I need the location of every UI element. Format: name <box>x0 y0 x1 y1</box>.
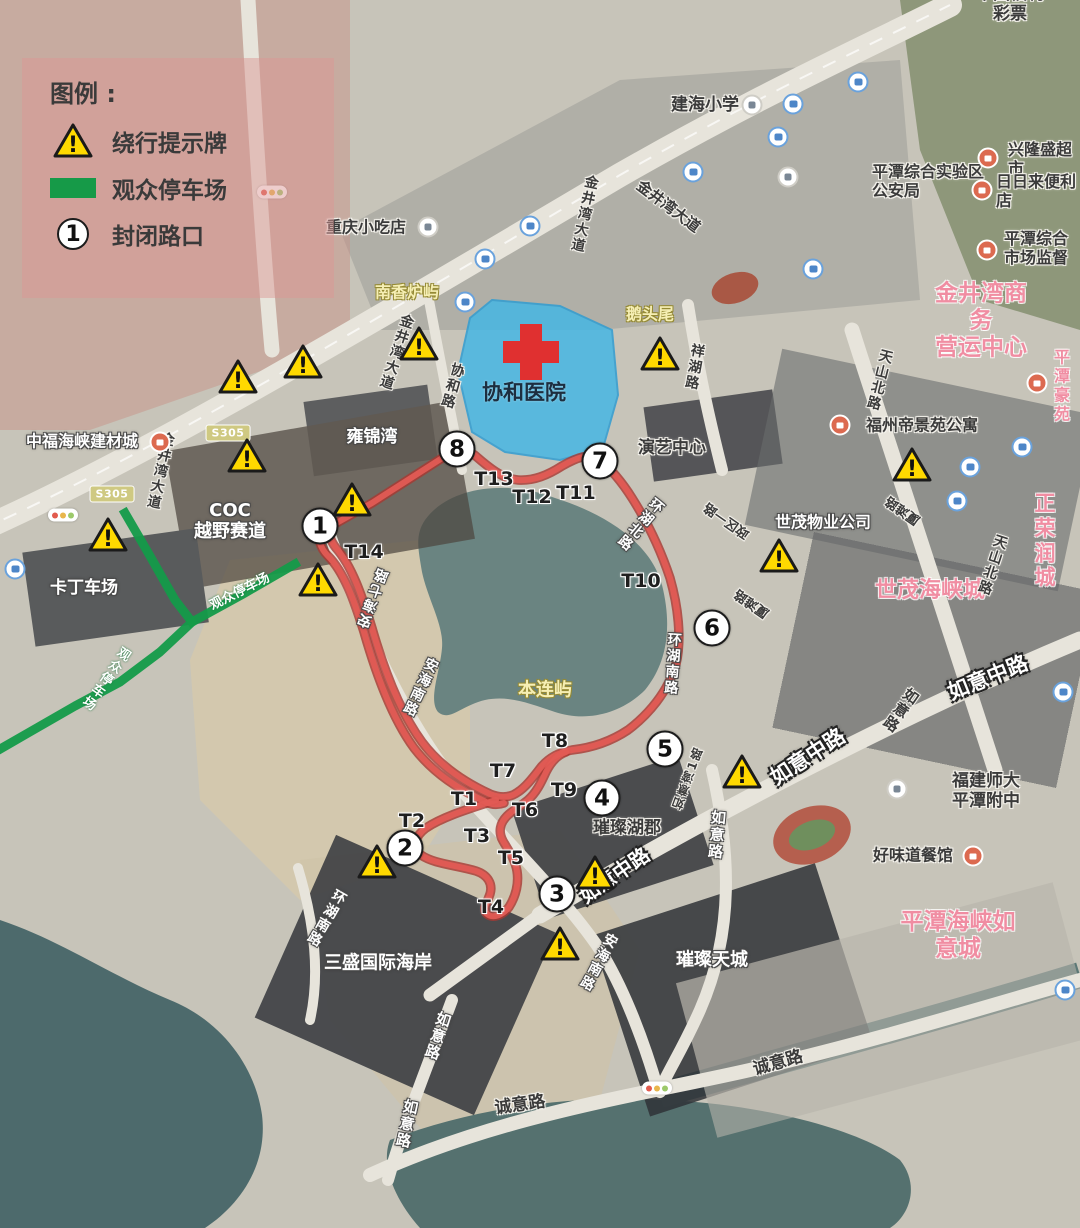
legend-item-label: 观众停车场 <box>112 171 227 205</box>
traffic-light-icon <box>642 1082 672 1095</box>
map-label: 中福海峡建材城 <box>26 433 138 452</box>
shop-icon <box>1027 373 1048 394</box>
bus-stop-icon <box>683 162 704 183</box>
map-label: 如意路 <box>706 809 725 861</box>
parking-route-swatch <box>50 178 96 198</box>
turn-marker: T10 <box>621 570 660 592</box>
bus-stop-icon <box>803 259 824 280</box>
detour-warning-icon: ! <box>357 844 397 880</box>
turn-marker: T12 <box>512 486 551 508</box>
bus-stop-icon <box>947 491 968 512</box>
svg-text:!: ! <box>233 369 243 394</box>
detour-warning-icon: ! <box>399 326 439 362</box>
detour-warning-icon: ! <box>283 344 323 380</box>
svg-text:!: ! <box>313 572 323 597</box>
civic-poi-icon <box>887 779 908 800</box>
map-label: 如意路 <box>393 1097 418 1150</box>
traffic-light-icon <box>48 509 78 522</box>
map-label: 世茂物业公司 <box>775 514 871 533</box>
closed-intersection-marker: 7 <box>582 443 619 480</box>
map-label: 如意路 <box>422 1009 452 1062</box>
map-label: 鹅头尾 <box>626 306 674 325</box>
closed-intersection-marker: 3 <box>539 876 576 913</box>
civic-poi-icon <box>778 167 799 188</box>
map-label: COC 越野赛道 <box>194 500 266 542</box>
map-label: 诚意路 <box>493 1092 546 1119</box>
bus-stop-icon <box>475 249 496 270</box>
map-label: 环湖北路 <box>614 495 666 553</box>
detour-warning-icon: ! <box>218 359 258 395</box>
map-label: 中国福利彩票 <box>975 0 1045 24</box>
closed-intersection-badge: 1 <box>50 218 96 250</box>
map-label: 世茂海峡城 <box>875 578 985 604</box>
map-label: 天山北路 <box>975 532 1008 597</box>
map-label: 如意中路 <box>766 724 850 791</box>
map-label: 厦滩路 <box>732 586 773 621</box>
map-label: 福建师大 平潭附中 <box>952 771 1020 811</box>
map-label: 协和路 <box>439 361 466 411</box>
closed-intersection-marker: 4 <box>584 780 621 817</box>
map-label: 金井湾商务 营运中心 <box>932 280 1031 361</box>
map-label: 诚意路 <box>751 1046 806 1079</box>
turn-marker: T13 <box>474 468 513 490</box>
detour-warning-icon: ! <box>892 447 932 483</box>
bus-stop-icon <box>455 292 476 313</box>
turn-marker: T5 <box>498 847 524 869</box>
map-label: 演艺中心 <box>638 438 706 458</box>
detour-warning-icon: ! <box>298 562 338 598</box>
detour-warning-icon: ! <box>640 336 680 372</box>
turn-marker: T1 <box>451 788 477 810</box>
map-canvas[interactable]: 建海小学平潭综合实验区 公安局兴隆盛超市日日来便利店平潭综合 市场监督中国福利彩… <box>0 0 1080 1228</box>
bus-stop-icon <box>848 72 869 93</box>
svg-text:!: ! <box>414 336 424 361</box>
bus-stop-icon <box>5 559 26 580</box>
svg-text:!: ! <box>590 865 600 890</box>
svg-text:!: ! <box>774 548 784 573</box>
map-label: 厦滩路 <box>883 493 924 528</box>
turn-marker: T8 <box>542 730 568 752</box>
map-label: 环湖南路 <box>304 887 348 949</box>
map-label: 好味道餐馆 <box>873 847 953 866</box>
detour-warning-icon: ! <box>227 438 267 474</box>
turn-marker: T9 <box>551 779 577 801</box>
civic-poi-icon <box>742 95 763 116</box>
shop-icon <box>830 415 851 436</box>
bus-stop-icon <box>960 457 981 478</box>
bus-stop-icon <box>783 94 804 115</box>
turn-marker: T11 <box>556 482 595 504</box>
map-label: 平潭 豪苑 <box>1054 348 1080 424</box>
map-label: 平潭海峡如意城 <box>897 909 1019 963</box>
map-label: 协和医院 <box>482 381 566 406</box>
legend-item-closed: 1 封闭路口 <box>50 217 334 251</box>
legend-item-parking: 观众停车场 <box>50 171 334 205</box>
map-label: 金井湾大道 <box>569 173 599 254</box>
map-label: 重庆小吃店 <box>326 219 406 238</box>
map-label: 安海南路 <box>400 655 440 719</box>
legend-item-label: 绕行提示牌 <box>112 124 227 158</box>
svg-text:!: ! <box>347 492 357 517</box>
detour-warning-icon: ! <box>759 538 799 574</box>
map-label: 天山北路 <box>864 347 893 412</box>
map-label: 三盛国际海岸 <box>324 952 432 973</box>
map-label: 安海南路 <box>577 930 619 993</box>
map-label: 安海七路 <box>356 566 391 631</box>
shop-icon <box>978 148 999 169</box>
turn-marker: T6 <box>512 799 538 821</box>
road-badge-s305: S305 <box>90 486 135 503</box>
map-label: 日日来便利店 <box>996 173 1080 211</box>
map-label: 祥湖路 <box>683 342 705 392</box>
bus-stop-icon <box>1053 682 1074 703</box>
svg-text:!: ! <box>555 936 565 961</box>
map-label: 正荣润城 <box>1028 491 1063 590</box>
map-label: 如意路 <box>879 685 921 735</box>
map-label: 雍锦湾 <box>347 427 398 447</box>
legend-title: 图例 : <box>50 74 334 109</box>
bus-stop-icon <box>1055 980 1076 1001</box>
map-label: 如意中路 <box>944 651 1031 705</box>
map-label: 兴隆盛超市 <box>1008 141 1080 179</box>
svg-text:!: ! <box>68 133 78 158</box>
svg-text:!: ! <box>103 527 113 552</box>
svg-text:!: ! <box>298 354 308 379</box>
svg-text:!: ! <box>907 457 917 482</box>
shop-icon <box>963 846 984 867</box>
bus-stop-icon <box>1012 437 1033 458</box>
map-label: 平潭综合 市场监督 <box>1004 230 1068 268</box>
map-label: 南香炉屿 <box>375 284 439 303</box>
map-label: 璀璨天城 <box>676 949 748 970</box>
turn-marker: T4 <box>478 896 504 918</box>
bus-stop-icon <box>520 216 541 237</box>
warning-triangle-icon: ! <box>50 123 96 159</box>
closed-intersection-marker: 5 <box>647 731 684 768</box>
map-label: 金井湾大道 <box>633 177 704 236</box>
map-label: 观众停车场 <box>78 644 132 713</box>
detour-warning-icon: ! <box>722 754 762 790</box>
bus-stop-icon <box>768 127 789 148</box>
turn-marker: T3 <box>464 825 490 847</box>
detour-warning-icon: ! <box>332 482 372 518</box>
map-label: 福州帝景苑公寓 <box>866 417 978 436</box>
svg-text:!: ! <box>372 854 382 879</box>
svg-text:!: ! <box>242 448 252 473</box>
civic-poi-icon <box>418 217 439 238</box>
legend-item-detour: ! 绕行提示牌 <box>50 123 334 159</box>
svg-text:!: ! <box>737 764 747 789</box>
map-label: 建海小学 <box>671 95 739 115</box>
detour-warning-icon: ! <box>540 926 580 962</box>
svg-text:!: ! <box>655 346 665 371</box>
shop-icon <box>977 240 998 261</box>
map-label: 本连屿 <box>518 679 572 700</box>
map-label: 环湖南路 <box>663 632 681 697</box>
map-label: 平潭综合实验区 公安局 <box>872 163 984 201</box>
legend-item-label: 封闭路口 <box>112 217 204 251</box>
closed-intersection-marker: 6 <box>694 610 731 647</box>
map-label: 卡丁车场 <box>50 578 118 598</box>
shop-icon <box>150 432 171 453</box>
map-label: 观众停车场 <box>208 570 273 613</box>
detour-warning-icon: ! <box>88 517 128 553</box>
turn-marker: T7 <box>490 760 516 782</box>
shop-icon <box>972 180 993 201</box>
detour-warning-icon: ! <box>575 855 615 891</box>
legend-panel: 图例 : ! 绕行提示牌 观众停车场 1 封闭路口 <box>22 58 334 298</box>
turn-marker: T14 <box>344 541 383 563</box>
closed-intersection-marker: 8 <box>439 431 476 468</box>
map-label: 政区一路 <box>701 499 752 541</box>
map-label: 璀璨湖郡 <box>593 818 661 838</box>
